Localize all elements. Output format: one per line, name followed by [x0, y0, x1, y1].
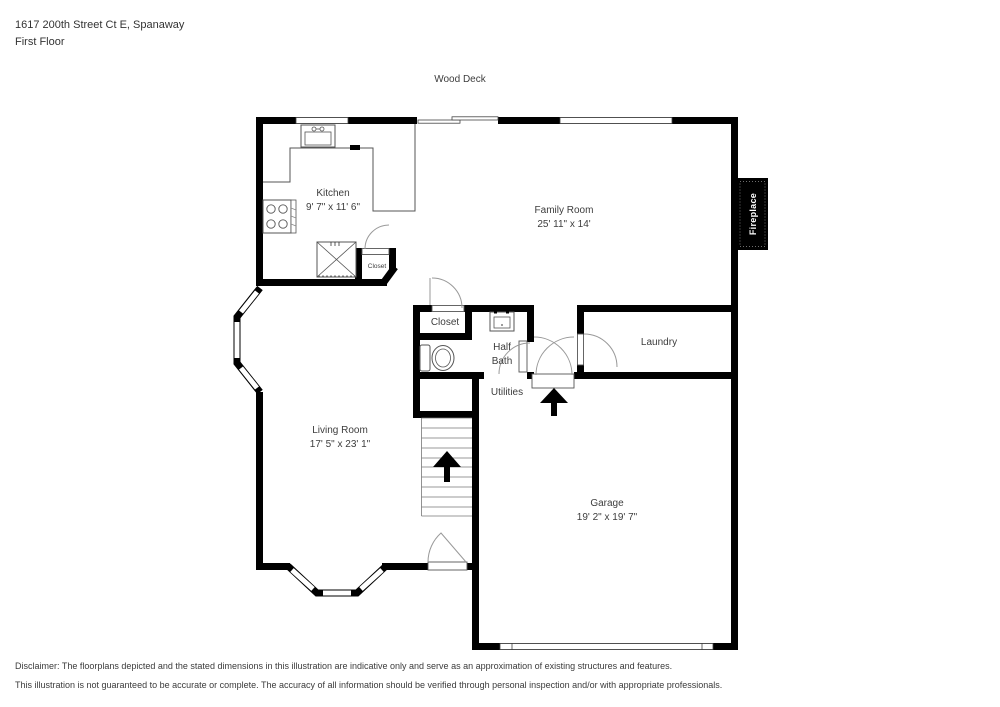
kitchen-window: [296, 118, 348, 124]
garage-entry-threshold: [532, 374, 574, 388]
bay-window-bottom: [288, 566, 386, 593]
laundry-door: [578, 334, 584, 365]
family-room-dims: 25' 11" x 14': [535, 218, 594, 232]
hall-closet-label: Closet: [431, 316, 459, 330]
family-room-label: Family Room 25' 11" x 14': [535, 204, 594, 232]
garage-door: [500, 644, 713, 650]
fireplace-label-wrap: Fireplace: [737, 178, 768, 250]
stove-icon: [263, 200, 296, 233]
living-room-dims: 17' 5" x 23' 1": [310, 438, 370, 452]
kitchen-label: Kitchen 9' 7" x 11' 6": [306, 187, 360, 215]
living-room-label: Living Room 17' 5" x 23' 1": [310, 424, 370, 452]
toilet-icon: [420, 345, 454, 371]
bathroom-sink-icon: [490, 311, 514, 332]
kitchen-closet-door: [362, 249, 389, 255]
living-room-name: Living Room: [310, 424, 370, 438]
utilities-label: Utilities: [491, 386, 523, 400]
hall-closet-door: [432, 306, 464, 312]
fireplace-label: Fireplace: [748, 193, 758, 235]
family-room-window: [560, 118, 672, 124]
garage-dims: 19' 2" x 19' 7": [577, 511, 637, 525]
laundry-label: Laundry: [641, 336, 677, 350]
kitchen-closet-label: Closet: [368, 263, 386, 271]
slider-door-panel: [452, 117, 498, 120]
kitchen-island-icon: [317, 242, 356, 277]
garage-name: Garage: [577, 497, 637, 511]
disclaimer-line-2: This illustration is not guaranteed to b…: [15, 680, 722, 690]
bay-window-left: [237, 288, 260, 392]
garage-label: Garage 19' 2" x 19' 7": [577, 497, 637, 525]
kitchen-dims: 9' 7" x 11' 6": [306, 201, 360, 215]
interior-walls: [355, 248, 731, 418]
front-door-threshold: [428, 562, 467, 570]
wood-deck-label: Wood Deck: [434, 73, 486, 87]
slider-door-panel: [418, 120, 460, 123]
disclaimer-line-1: Disclaimer: The floorplans depicted and …: [15, 661, 672, 671]
kitchen-name: Kitchen: [306, 187, 360, 201]
kitchen-sink-icon: [301, 125, 335, 147]
entry-up-arrow: [540, 388, 568, 416]
dishwasher-icon: [350, 145, 360, 150]
floorplan-page: 1617 200th Street Ct E, Spanaway First F…: [0, 0, 1000, 707]
family-room-name: Family Room: [535, 204, 594, 218]
half-bath-label: Half Bath: [483, 341, 521, 369]
